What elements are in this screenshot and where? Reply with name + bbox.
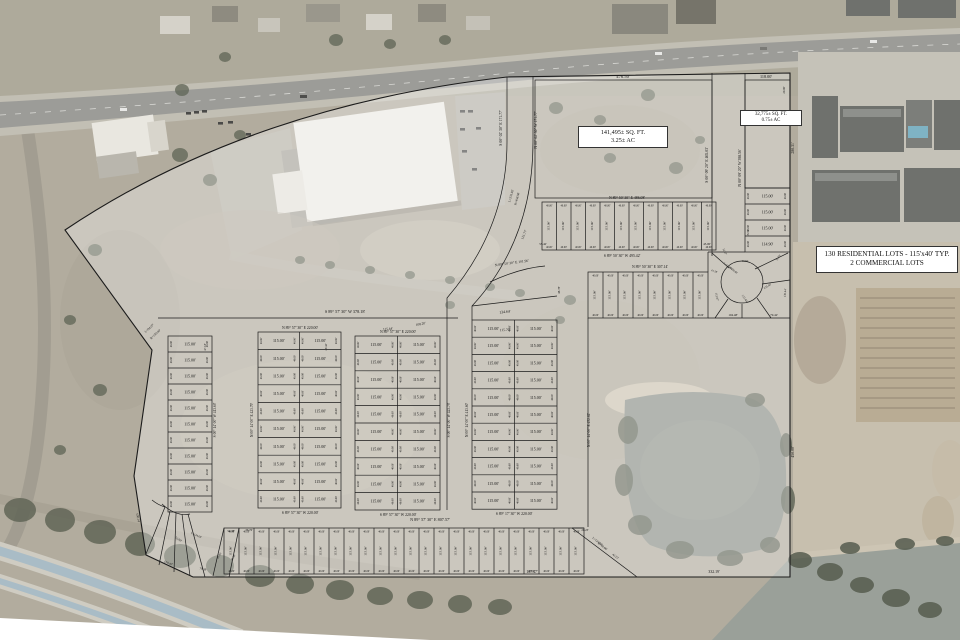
svg-text:118.00': 118.00' [760,74,772,79]
svg-text:S 89° 50' 30" W 495.42': S 89° 50' 30" W 495.42' [604,254,641,258]
svg-text:40.00': 40.00' [335,390,338,397]
svg-text:40.00': 40.00' [551,445,554,452]
svg-text:40.00': 40.00' [590,205,597,208]
svg-text:S 89° 17' 30" W 220.00': S 89° 17' 30" W 220.00' [496,512,533,516]
svg-text:115.00': 115.00' [638,290,642,300]
svg-text:40.00': 40.00' [302,390,305,397]
svg-text:40.00': 40.00' [691,205,698,208]
svg-text:115.00': 115.00' [530,412,542,417]
svg-text:40.00': 40.00' [498,531,505,534]
svg-text:40.00': 40.00' [697,314,704,317]
svg-text:115.00': 115.00' [530,446,542,451]
svg-text:48.78': 48.78' [557,286,561,294]
svg-text:40.00': 40.00' [509,411,512,418]
svg-text:115.00': 115.00' [314,409,326,414]
svg-text:40.00': 40.00' [619,205,626,208]
svg-text:115.00': 115.00' [370,481,382,486]
svg-text:S 00° 02' 30" E 171.77': S 00° 02' 30" E 171.77' [499,110,503,146]
svg-text:115.00': 115.00' [314,391,326,396]
svg-text:40.00': 40.00' [400,411,403,418]
svg-text:40.00': 40.00' [260,390,263,397]
svg-text:40.00': 40.00' [392,445,395,452]
svg-text:115.00': 115.00' [314,497,326,502]
svg-text:40.00': 40.00' [498,570,505,573]
svg-text:115.00': 115.00' [544,546,548,556]
svg-text:115.00': 115.00' [184,453,196,458]
svg-text:40.00': 40.00' [509,377,512,384]
svg-text:40.00': 40.00' [474,359,477,366]
svg-text:40.00': 40.00' [434,445,437,452]
svg-text:40.00': 40.00' [573,570,580,573]
svg-text:S 89° 57' 30" W 378.18': S 89° 57' 30" W 378.18' [325,309,366,314]
svg-text:115.00': 115.00' [590,221,594,231]
svg-text:40.00': 40.00' [637,314,644,317]
svg-text:40.00': 40.00' [434,428,437,435]
svg-text:115.00': 115.00' [413,429,425,434]
svg-text:40.00': 40.00' [682,275,689,278]
svg-text:S 00° 14' 00" W 423.79': S 00° 14' 00" W 423.79' [447,402,451,437]
svg-text:40.00': 40.00' [357,480,360,487]
svg-text:115.00': 115.00' [698,290,702,300]
svg-text:40.00': 40.00' [400,341,403,348]
svg-text:40.00': 40.00' [335,478,338,485]
svg-text:40.00': 40.00' [363,531,370,534]
svg-text:40.00': 40.00' [513,570,520,573]
svg-text:40.00': 40.00' [400,376,403,383]
svg-text:40.00': 40.00' [206,484,209,491]
commercial-lot-2-label: 32,775± SQ. FT. 0.75± AC [740,110,802,126]
svg-text:40.00': 40.00' [573,531,580,534]
svg-text:115.00': 115.00' [184,389,196,394]
svg-text:115.00': 115.00' [530,378,542,383]
svg-text:40.00': 40.00' [357,463,360,470]
svg-text:40.00': 40.00' [468,531,475,534]
svg-text:40.00': 40.00' [423,531,430,534]
svg-text:115.00': 115.00' [314,373,326,378]
svg-text:115.00': 115.00' [244,546,248,556]
svg-text:40.00': 40.00' [294,355,297,362]
svg-text:114.90': 114.90' [762,241,774,246]
svg-text:40.00': 40.00' [543,531,550,534]
svg-text:40.00': 40.00' [474,411,477,418]
svg-text:40.00': 40.00' [294,460,297,467]
svg-text:40.00': 40.00' [170,452,173,459]
svg-text:40.00': 40.00' [294,496,297,503]
svg-text:40.00': 40.00' [648,205,655,208]
svg-text:40.00': 40.00' [546,205,553,208]
svg-text:40.00': 40.00' [400,480,403,487]
svg-text:40.00': 40.00' [392,411,395,418]
svg-text:40.00': 40.00' [228,570,235,573]
svg-text:40.00': 40.00' [434,376,437,383]
svg-text:40.00': 40.00' [170,436,173,443]
svg-text:115.00': 115.00' [184,341,196,346]
svg-text:40.00': 40.00' [170,388,173,395]
svg-text:47.18': 47.18' [203,343,207,351]
svg-text:79.42': 79.42' [770,313,778,317]
svg-text:115.00': 115.00' [633,221,637,231]
svg-text:115.00': 115.00' [683,290,687,300]
svg-text:115.00': 115.00' [413,447,425,452]
svg-text:49.43': 49.43' [324,343,328,351]
svg-text:40.00': 40.00' [513,531,520,534]
svg-text:115.00': 115.00' [529,546,533,556]
svg-text:40.00': 40.00' [408,570,415,573]
svg-text:40.00': 40.00' [260,372,263,379]
svg-text:40.00': 40.00' [453,531,460,534]
svg-text:40.00': 40.00' [260,425,263,432]
svg-text:40.00': 40.00' [517,480,520,487]
svg-text:40.00': 40.00' [697,275,704,278]
svg-text:40.00': 40.00' [706,205,713,208]
svg-text:115.00': 115.00' [413,412,425,417]
svg-text:40.00': 40.00' [474,428,477,435]
construction-area-east [793,242,960,558]
svg-text:40.00': 40.00' [474,377,477,384]
svg-text:40.00': 40.00' [333,531,340,534]
svg-text:40.00': 40.00' [400,428,403,435]
svg-text:40.00': 40.00' [592,314,599,317]
svg-text:115.00': 115.00' [546,221,550,231]
svg-text:115.00': 115.00' [530,464,542,469]
svg-text:40.00': 40.00' [474,463,477,470]
svg-text:40.00': 40.00' [517,411,520,418]
svg-text:40.00': 40.00' [590,246,597,249]
svg-text:40.00': 40.00' [363,570,370,573]
svg-text:40.00': 40.00' [604,205,611,208]
svg-text:40.00': 40.00' [438,570,445,573]
svg-text:115.00': 115.00' [413,394,425,399]
svg-text:40.00': 40.00' [302,408,305,415]
svg-text:115.00': 115.00' [413,342,425,347]
svg-text:40.00': 40.00' [260,408,263,415]
svg-text:40.00': 40.00' [303,570,310,573]
svg-text:40.00': 40.00' [474,480,477,487]
svg-text:115.00': 115.00' [487,481,499,486]
svg-text:167.47': 167.47' [526,570,537,574]
svg-text:40.00': 40.00' [509,342,512,349]
svg-text:40.00': 40.00' [170,340,173,347]
svg-text:115.00': 115.00' [314,479,326,484]
svg-text:40.00': 40.00' [392,341,395,348]
svg-text:N 89° 57' 30" E 220.00': N 89° 57' 30" E 220.00' [282,326,318,330]
svg-text:115.00': 115.00' [394,546,398,556]
svg-text:40.00': 40.00' [400,358,403,365]
svg-text:40.00': 40.00' [335,425,338,432]
svg-text:40.00': 40.00' [357,428,360,435]
svg-text:115.00': 115.00' [439,546,443,556]
svg-text:40.00': 40.00' [434,480,437,487]
svg-text:115.00': 115.00' [487,395,499,400]
svg-text:40.00': 40.00' [483,531,490,534]
svg-text:40.00': 40.00' [170,420,173,427]
svg-text:40.00': 40.00' [622,275,629,278]
svg-text:40.00': 40.00' [318,531,325,534]
svg-text:40.00': 40.00' [335,443,338,450]
svg-text:40.00': 40.00' [206,452,209,459]
svg-text:40.00': 40.00' [357,498,360,505]
svg-text:40.00': 40.00' [378,570,385,573]
svg-text:N 89° 57' 30" E 807.57': N 89° 57' 30" E 807.57' [410,517,450,522]
svg-text:115.00': 115.00' [273,444,285,449]
svg-text:115.00': 115.00' [487,378,499,383]
svg-text:40.00': 40.00' [260,460,263,467]
svg-text:115.00': 115.00' [487,360,499,365]
svg-text:40.00': 40.00' [509,497,512,504]
svg-text:40.00': 40.00' [357,411,360,418]
svg-text:40.00': 40.00' [677,205,684,208]
svg-text:40.00': 40.00' [517,325,520,332]
svg-text:40.00': 40.00' [392,463,395,470]
svg-text:40.00': 40.00' [622,314,629,317]
svg-text:40.00': 40.00' [558,531,565,534]
svg-text:40.00': 40.00' [682,314,689,317]
svg-text:40.00': 40.00' [170,372,173,379]
svg-text:115.00': 115.00' [691,221,695,231]
svg-text:N 00° 14' 00" E 423.79': N 00° 14' 00" E 423.79' [250,403,254,437]
svg-text:40.00': 40.00' [551,342,554,349]
svg-text:115.00': 115.00' [413,360,425,365]
svg-text:40.00': 40.00' [206,500,209,507]
svg-text:40.00': 40.00' [551,480,554,487]
svg-text:115.00': 115.00' [273,338,285,343]
svg-text:40.00': 40.00' [302,425,305,432]
svg-text:40.00': 40.00' [517,463,520,470]
svg-text:115.00': 115.00' [648,221,652,231]
svg-text:40.00': 40.00' [434,498,437,505]
svg-text:450.00': 450.00' [791,446,795,457]
svg-text:40.00': 40.00' [393,570,400,573]
svg-text:115.00': 115.00' [370,447,382,452]
svg-text:40.00': 40.00' [335,372,338,379]
svg-text:40.00': 40.00' [453,570,460,573]
svg-text:115.00': 115.00' [413,464,425,469]
svg-text:115.00': 115.00' [762,193,774,198]
svg-text:115.00': 115.00' [273,426,285,431]
svg-text:N 89° 50' 30" E 486.08': N 89° 50' 30" E 486.08' [609,196,645,200]
svg-text:40.00': 40.00' [348,531,355,534]
svg-text:115.00': 115.00' [530,360,542,365]
svg-text:40.00': 40.00' [302,496,305,503]
svg-text:55.42': 55.42' [539,242,547,246]
svg-text:40.00': 40.00' [648,246,655,249]
svg-text:40.00': 40.00' [357,393,360,400]
svg-text:115.00': 115.00' [273,461,285,466]
svg-text:40.00': 40.00' [551,325,554,332]
svg-text:115.00': 115.00' [608,290,612,300]
svg-text:40.00': 40.00' [302,478,305,485]
svg-text:40.00': 40.00' [468,570,475,573]
svg-text:40.00': 40.00' [517,394,520,401]
svg-text:40.00': 40.00' [400,445,403,452]
svg-text:40.00': 40.00' [592,275,599,278]
svg-text:40.00': 40.00' [509,445,512,452]
svg-text:40.00': 40.00' [561,246,568,249]
svg-text:115.00': 115.00' [530,498,542,503]
svg-text:115.00': 115.00' [314,338,326,343]
svg-text:40.00': 40.00' [509,359,512,366]
svg-text:115.00': 115.00' [623,290,627,300]
svg-text:40.00': 40.00' [509,480,512,487]
svg-text:115.00': 115.00' [184,485,196,490]
svg-text:115.00': 115.00' [469,546,473,556]
svg-text:40.00': 40.00' [333,570,340,573]
svg-text:40.00': 40.00' [302,372,305,379]
svg-text:115.00': 115.00' [762,209,774,214]
svg-text:40.00': 40.00' [335,460,338,467]
svg-text:40.00': 40.00' [400,463,403,470]
svg-text:115.00': 115.00' [424,546,428,556]
svg-text:115.00': 115.00' [184,373,196,378]
svg-text:40.00': 40.00' [392,376,395,383]
svg-text:332.19': 332.19' [708,570,719,574]
svg-text:40.00': 40.00' [706,246,713,249]
svg-text:40.00': 40.00' [294,425,297,432]
legend-line2: 2 COMMERCIAL LOTS [817,259,957,268]
svg-text:115.00': 115.00' [487,412,499,417]
svg-text:40.00': 40.00' [662,246,669,249]
svg-text:115.70': 115.70' [500,328,511,333]
svg-text:40.00': 40.00' [357,445,360,452]
svg-text:40.00': 40.00' [335,496,338,503]
svg-text:40.00': 40.00' [667,314,674,317]
svg-text:40.00': 40.00' [273,531,280,534]
svg-text:115.00': 115.00' [370,342,382,347]
svg-text:40.00': 40.00' [551,428,554,435]
svg-text:40.00': 40.00' [474,394,477,401]
svg-text:40.00': 40.00' [551,359,554,366]
svg-text:40.00': 40.00' [784,192,787,199]
svg-text:115.00': 115.00' [487,464,499,469]
svg-text:40.00': 40.00' [170,500,173,507]
svg-text:40.00': 40.00' [509,463,512,470]
svg-text:40.00': 40.00' [509,394,512,401]
svg-text:40.00': 40.00' [551,497,554,504]
svg-text:115.00': 115.00' [229,546,233,556]
legend-line1: 130 RESIDENTIAL LOTS - 115'x40' TYP. [817,250,957,259]
svg-text:115.00': 115.00' [484,546,488,556]
svg-text:40.00': 40.00' [206,372,209,379]
svg-text:40.00': 40.00' [260,337,263,344]
svg-text:115.00': 115.00' [677,221,681,231]
svg-text:40.00': 40.00' [551,411,554,418]
svg-text:115.00': 115.00' [413,481,425,486]
svg-text:N 00° 02' 30" W 171.77': N 00° 02' 30" W 171.77' [534,111,538,149]
svg-text:40.00': 40.00' [604,246,611,249]
svg-text:40.00': 40.00' [357,341,360,348]
svg-text:N 00° 14' 00" E 452.62': N 00° 14' 00" E 452.62' [587,413,591,447]
svg-text:40.00': 40.00' [318,570,325,573]
svg-text:40.00': 40.00' [294,390,297,397]
svg-text:115.00': 115.00' [559,546,563,556]
svg-text:40.00': 40.00' [677,246,684,249]
svg-text:115.00': 115.00' [304,546,308,556]
svg-text:40.00': 40.00' [517,428,520,435]
pool [908,126,928,138]
svg-text:115.00': 115.00' [273,373,285,378]
svg-text:40.00': 40.00' [551,394,554,401]
svg-text:115.00': 115.00' [499,546,503,556]
svg-text:40.00': 40.00' [434,393,437,400]
svg-text:115.00': 115.00' [273,409,285,414]
svg-text:40.00': 40.00' [543,570,550,573]
svg-text:45.00': 45.00' [703,242,711,246]
svg-text:115.00': 115.00' [561,221,565,231]
svg-text:40.00': 40.00' [474,325,477,332]
svg-text:40.00': 40.00' [561,205,568,208]
svg-text:40.00': 40.00' [575,205,582,208]
svg-text:N 00° 09' 20" W 398.56': N 00° 09' 20" W 398.56' [738,149,742,187]
svg-text:40.00': 40.00' [206,420,209,427]
svg-text:40.00': 40.00' [302,443,305,450]
svg-text:115.00': 115.00' [487,446,499,451]
svg-text:115.00': 115.00' [259,546,263,556]
svg-text:115.00': 115.00' [273,391,285,396]
svg-text:115.00': 115.00' [184,405,196,410]
svg-text:115.00': 115.00' [454,546,458,556]
apartment-complex [798,52,960,244]
svg-text:40.00': 40.00' [667,275,674,278]
svg-text:115.00': 115.00' [487,429,499,434]
svg-text:40.00': 40.00' [546,246,553,249]
svg-text:40.00': 40.00' [206,436,209,443]
svg-text:40.00': 40.00' [392,358,395,365]
svg-text:40.00': 40.00' [348,570,355,573]
svg-text:115.00': 115.00' [487,326,499,331]
svg-text:115.00': 115.00' [487,343,499,348]
svg-text:115.00': 115.00' [604,221,608,231]
svg-text:40.00': 40.00' [434,411,437,418]
svg-text:40.00': 40.00' [258,570,265,573]
legend-box: 130 RESIDENTIAL LOTS - 115'x40' TYP. 2 C… [816,246,958,273]
svg-text:40.00': 40.00' [206,356,209,363]
svg-text:40.00': 40.00' [784,240,787,247]
svg-text:115.00': 115.00' [364,546,368,556]
svg-text:115.00': 115.00' [530,481,542,486]
svg-text:54.38': 54.38' [227,529,235,533]
svg-text:40.00': 40.00' [423,570,430,573]
svg-text:40.00': 40.00' [438,531,445,534]
svg-text:115.00': 115.00' [413,499,425,504]
svg-text:N 89° 50' 30" E 307.14': N 89° 50' 30" E 307.14' [632,265,668,269]
svg-text:115.00': 115.00' [379,546,383,556]
svg-text:115.00': 115.00' [575,221,579,231]
svg-text:115.00': 115.00' [370,394,382,399]
svg-text:115.00': 115.00' [514,546,518,556]
svg-text:40.00': 40.00' [747,192,750,199]
svg-text:40.00': 40.00' [302,355,305,362]
svg-text:40.00': 40.00' [170,468,173,475]
svg-text:40.00': 40.00' [652,275,659,278]
svg-text:40.00': 40.00' [294,478,297,485]
svg-text:40.00': 40.00' [302,460,305,467]
svg-text:40.00': 40.00' [243,570,250,573]
svg-text:40.00': 40.00' [288,531,295,534]
svg-text:40.00': 40.00' [633,205,640,208]
svg-text:40.00': 40.00' [170,484,173,491]
svg-text:40.00': 40.00' [662,205,669,208]
svg-text:40.00': 40.00' [392,498,395,505]
svg-text:115.00': 115.00' [574,546,578,556]
svg-text:40.00': 40.00' [273,570,280,573]
aerial-photo: 115.00'40.00'40.00'115.00'40.00'40.00'11… [0,0,960,640]
svg-text:115.00': 115.00' [593,290,597,300]
svg-text:115.00': 115.00' [530,395,542,400]
svg-text:40.00': 40.00' [619,246,626,249]
svg-text:115.00': 115.00' [319,546,323,556]
svg-text:S 00° 14' 00" W 413.60': S 00° 14' 00" W 413.60' [213,402,217,437]
svg-text:115.00': 115.00' [273,479,285,484]
